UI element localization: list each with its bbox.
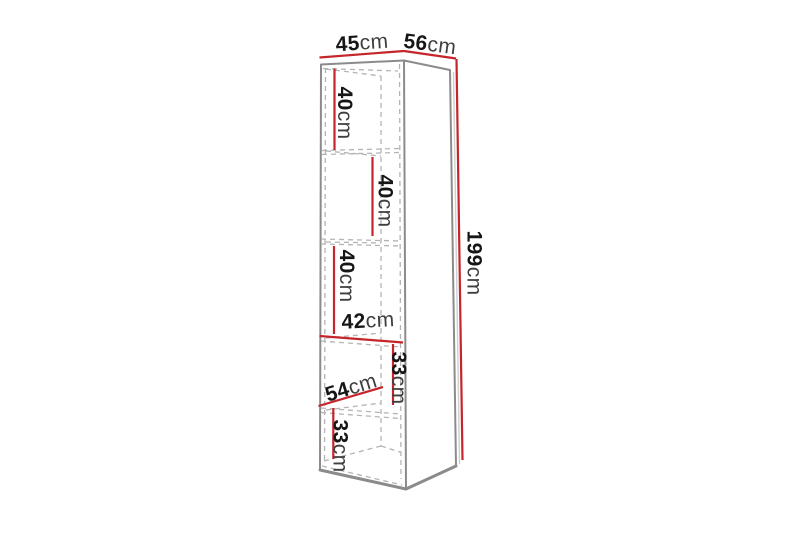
- interior-left-wall-dashed: [325, 68, 326, 461]
- cabinet-side-face: [404, 61, 456, 490]
- product-dimension-image: 45cm 56cm 199cm 40cm 40cm 40cm 42cm 33cm…: [0, 0, 800, 533]
- label-interior-width: 42cm: [341, 308, 395, 334]
- shelf-2-bottom-dashed: [321, 244, 401, 246]
- label-top-width: 45cm: [335, 29, 389, 56]
- label-compartment5-height: 33cm: [329, 420, 352, 473]
- label-compartment3-height: 40cm: [336, 250, 359, 303]
- label-top-depth: 56cm: [402, 29, 458, 59]
- label-total-height: 199cm: [463, 230, 486, 295]
- label-compartment1-height: 40cm: [334, 87, 357, 140]
- shelf-1-bottom-dashed: [322, 153, 400, 155]
- label-interior-depth: 54cm: [322, 369, 379, 406]
- label-compartment2-height: 40cm: [374, 175, 397, 228]
- shelf-2-receding-dashed: [326, 242, 381, 243]
- dim-line-total-height-199: [457, 59, 463, 460]
- interior-right-wall-dashed: [400, 64, 402, 479]
- label-compartment4-height: 33cm: [388, 352, 411, 405]
- cabinet-dimension-diagram: 45cm 56cm 199cm 40cm 40cm 40cm 42cm 33cm…: [0, 0, 800, 533]
- shelf-1-receding-dashed: [326, 151, 381, 156]
- interior-bottom-back-dashed: [381, 446, 400, 452]
- shelf-2-top-dashed: [321, 239, 401, 241]
